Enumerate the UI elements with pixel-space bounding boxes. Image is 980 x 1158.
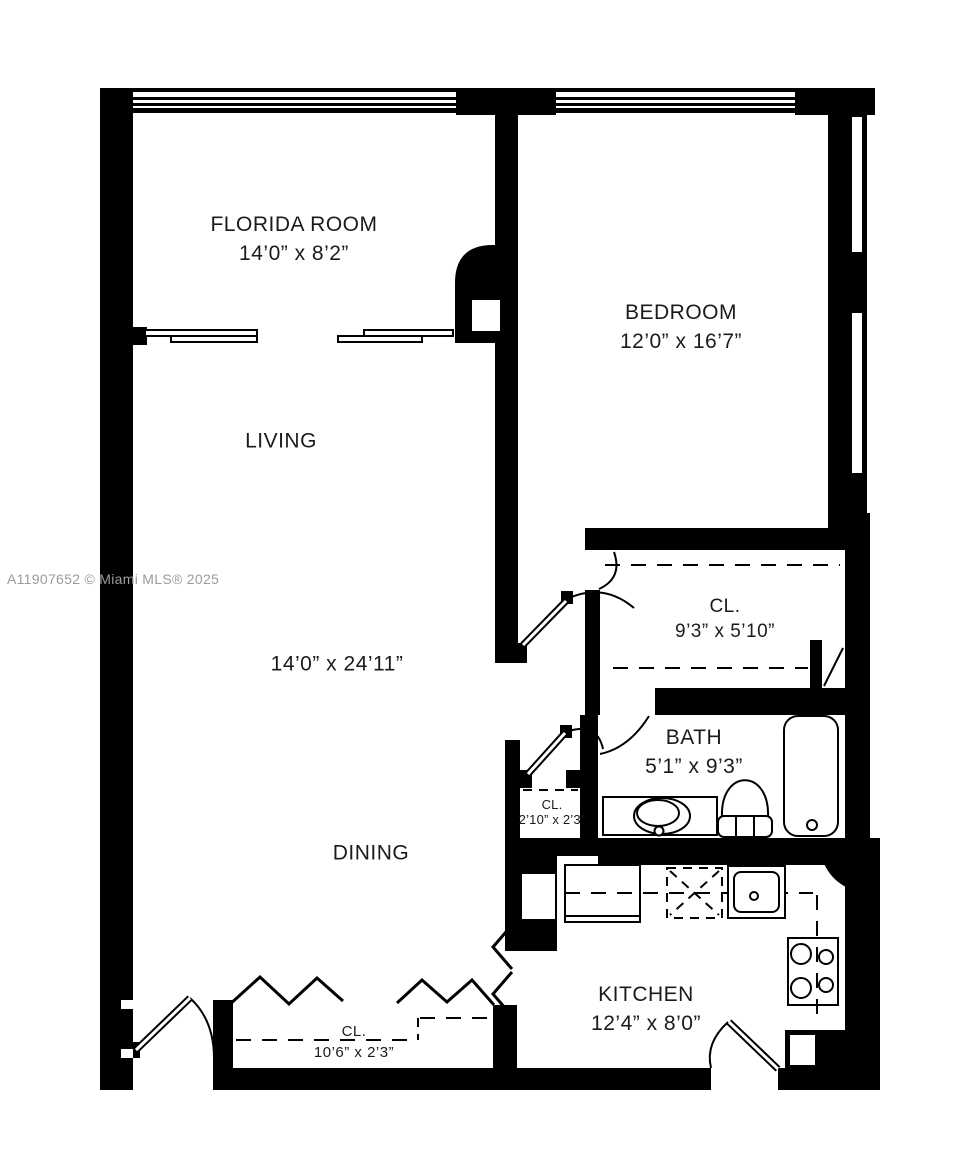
room-name: FLORIDA ROOM	[210, 210, 377, 239]
base-cabinet	[785, 1030, 845, 1068]
room-name: BEDROOM	[620, 298, 742, 327]
room-name: LIVING	[245, 427, 317, 456]
floor-plan: FLORIDA ROOM 14’0” x 8’2” BEDROOM 12’0” …	[0, 0, 980, 1158]
rounded-kitchen-corner	[818, 838, 878, 895]
room-name: DINING	[333, 839, 410, 868]
bifold-doors	[228, 925, 512, 1016]
room-label-bedroom-closet: CL. 9’3” x 5’10”	[675, 594, 775, 644]
room-dims: 2’10” x 2’3”	[519, 812, 586, 827]
room-dims: 14’0” x 8’2”	[210, 239, 377, 268]
room-dims-living: 14’0” x 24’11”	[271, 650, 404, 679]
room-label-bedroom: BEDROOM 12’0” x 16’7”	[620, 298, 742, 356]
room-label-entry-closet: CL. 10’6” x 2’3”	[314, 1021, 394, 1063]
room-dims: 9’3” x 5’10”	[675, 619, 775, 644]
vanity-sink	[603, 797, 717, 836]
room-name: CL.	[675, 594, 775, 619]
room-label-bath: BATH 5’1” x 9’3”	[645, 723, 743, 781]
room-label-living: LIVING	[245, 427, 317, 456]
room-label-dining: DINING	[333, 839, 410, 868]
bathtub	[784, 716, 838, 836]
room-dims: 5’1” x 9’3”	[645, 752, 743, 781]
room-dims: 10’6” x 2’3”	[314, 1042, 394, 1063]
room-dims: 12’4” x 8’0”	[591, 1009, 701, 1038]
room-name: CL.	[519, 797, 586, 812]
kitchen-sink	[728, 866, 785, 918]
toilet	[718, 780, 772, 837]
room-label-florida-room: FLORIDA ROOM 14’0” x 8’2”	[210, 210, 377, 268]
stove	[788, 938, 838, 1005]
room-name: KITCHEN	[591, 980, 701, 1009]
room-dims: 14’0” x 24’11”	[271, 650, 404, 679]
room-label-kitchen: KITCHEN 12’4” x 8’0”	[591, 980, 701, 1038]
room-name: BATH	[645, 723, 743, 752]
sliding-windows	[145, 330, 453, 342]
room-dims: 12’0” x 16’7”	[620, 327, 742, 356]
mls-watermark: A11907652 © Miami MLS® 2025	[7, 571, 219, 587]
room-label-hall-closet: CL. 2’10” x 2’3”	[519, 797, 586, 827]
room-name: CL.	[314, 1021, 394, 1042]
